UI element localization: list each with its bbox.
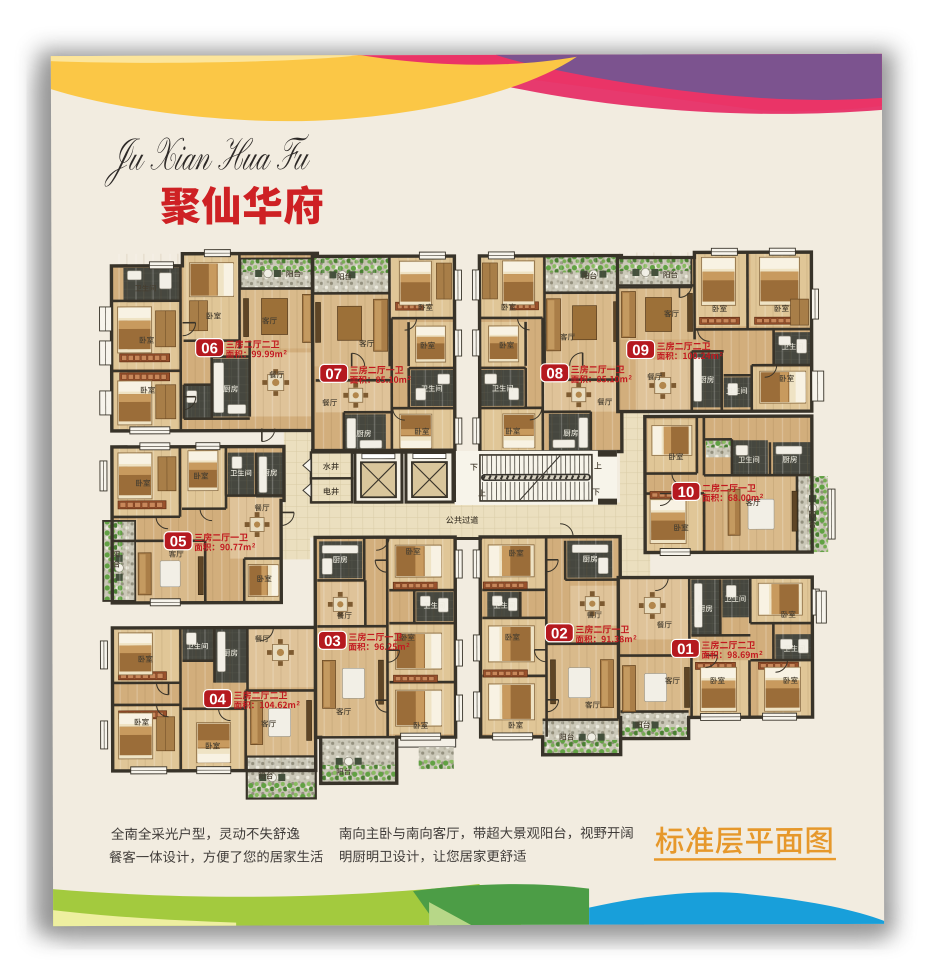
svg-text:01: 01 <box>677 641 694 658</box>
svg-text:04: 04 <box>209 691 226 708</box>
svg-text:10: 10 <box>678 484 695 501</box>
svg-text:07: 07 <box>325 366 342 383</box>
svg-text:03: 03 <box>324 633 341 650</box>
svg-text:08: 08 <box>546 365 563 382</box>
svg-text:02: 02 <box>551 625 568 642</box>
svg-text:05: 05 <box>170 533 187 550</box>
svg-text:06: 06 <box>201 340 218 357</box>
svg-text:09: 09 <box>632 342 649 359</box>
